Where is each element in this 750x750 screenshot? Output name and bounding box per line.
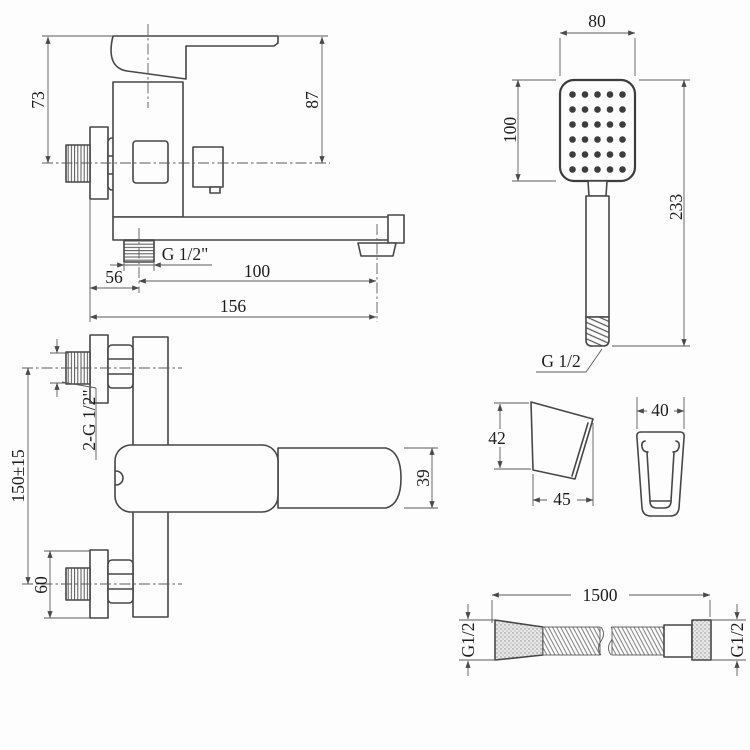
spray-hole bbox=[569, 106, 576, 113]
dim-100-label: 100 bbox=[244, 261, 271, 281]
shower-thread-label: G 1/2 bbox=[541, 351, 580, 371]
spray-hole bbox=[582, 136, 589, 143]
hose-left-fitting bbox=[495, 620, 543, 660]
spray-hole bbox=[582, 91, 589, 98]
hex-nut-top bbox=[108, 345, 133, 388]
faucet-side-view: 73 87 G 1/2" 56 100 156 bbox=[28, 24, 404, 322]
spout-end-cap bbox=[388, 215, 404, 243]
wall-bracket-side-view: 42 45 bbox=[486, 402, 593, 509]
technical-drawing: 73 87 G 1/2" 56 100 156 80 100 233 G 1/2 bbox=[0, 0, 750, 750]
dim-80-label: 80 bbox=[588, 11, 606, 31]
outlet-thread-label: G 1/2" bbox=[162, 244, 209, 264]
spray-hole bbox=[619, 136, 626, 143]
spray-hole bbox=[582, 106, 589, 113]
dim-42-label: 42 bbox=[488, 428, 506, 448]
hose-corrugation-left bbox=[543, 627, 600, 655]
inlet-threads-label: 2-G 1/2" bbox=[79, 389, 99, 450]
dim-100-label: 100 bbox=[500, 117, 520, 144]
dim-40-label: 40 bbox=[651, 400, 669, 420]
hose-corrugation-right bbox=[612, 627, 664, 655]
spray-hole bbox=[582, 121, 589, 128]
spray-hole bbox=[569, 91, 576, 98]
spray-hole bbox=[569, 151, 576, 158]
dim-87-label: 87 bbox=[302, 91, 322, 109]
spray-hole bbox=[569, 166, 576, 173]
spray-hole bbox=[607, 106, 614, 113]
dim-56-label: 56 bbox=[105, 267, 123, 287]
spray-hole bbox=[582, 166, 589, 173]
spray-hole bbox=[619, 166, 626, 173]
spray-hole bbox=[607, 91, 614, 98]
dim-156-label: 156 bbox=[220, 296, 247, 316]
wall-bracket-front-view: 40 bbox=[637, 397, 684, 516]
shower-thread bbox=[586, 317, 609, 346]
hand-shower-view: 80 100 233 G 1/2 bbox=[500, 11, 690, 372]
hose-thread-left-label: G1/2 bbox=[458, 623, 478, 658]
spray-hole bbox=[594, 151, 601, 158]
spray-hole bbox=[619, 151, 626, 158]
bracket-front-outline bbox=[637, 432, 684, 516]
hex-nut-bottom bbox=[108, 560, 133, 603]
spout-top-view bbox=[278, 448, 401, 508]
spray-hole bbox=[607, 166, 614, 173]
shower-hose-view: 1500 G1/2 G1/2 bbox=[458, 585, 747, 676]
inlet-thread bbox=[66, 145, 90, 182]
dim-60-label: 60 bbox=[31, 576, 51, 594]
shower-port-block bbox=[193, 147, 223, 193]
shower-neck bbox=[588, 181, 607, 196]
hose-ferrule bbox=[664, 625, 692, 657]
faucet-top-view: 2-G 1/2" 150±15 60 39 bbox=[8, 335, 438, 618]
spray-hole bbox=[619, 106, 626, 113]
dim-150-label: 150±15 bbox=[8, 449, 28, 503]
spray-hole bbox=[594, 136, 601, 143]
spray-hole bbox=[607, 136, 614, 143]
dim-1500-label: 1500 bbox=[583, 585, 618, 605]
spray-hole bbox=[607, 121, 614, 128]
bracket-side-outline bbox=[531, 402, 593, 479]
dim-233-label: 233 bbox=[666, 194, 686, 221]
spray-hole bbox=[619, 121, 626, 128]
drawing-canvas: 73 87 G 1/2" 56 100 156 80 100 233 G 1/2 bbox=[0, 0, 750, 750]
spray-hole bbox=[594, 121, 601, 128]
spout-arm bbox=[113, 217, 390, 240]
dim-39-label: 39 bbox=[413, 469, 433, 487]
lever-handle bbox=[111, 36, 278, 79]
spray-hole bbox=[582, 151, 589, 158]
body-top-view bbox=[115, 445, 278, 512]
spray-hole bbox=[594, 166, 601, 173]
shower-handle bbox=[586, 196, 609, 317]
spray-hole bbox=[594, 91, 601, 98]
spray-hole bbox=[619, 91, 626, 98]
hose-thread-right-label: G1/2 bbox=[727, 623, 747, 658]
spray-hole bbox=[594, 106, 601, 113]
hose-right-fitting bbox=[692, 620, 711, 660]
dim-45-label: 45 bbox=[553, 489, 571, 509]
spray-hole bbox=[569, 136, 576, 143]
spray-hole bbox=[607, 151, 614, 158]
spray-hole bbox=[569, 121, 576, 128]
valve-housing bbox=[133, 141, 168, 183]
dim-73-label: 73 bbox=[28, 91, 48, 109]
